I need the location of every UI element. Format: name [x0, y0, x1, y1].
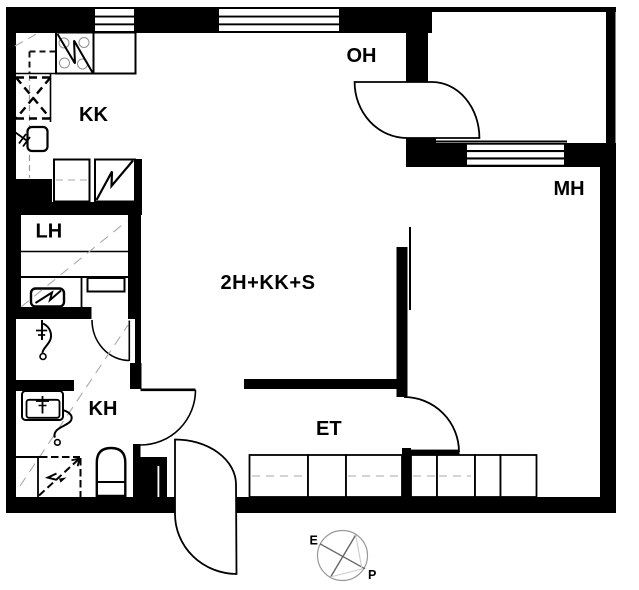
svg-text:OH: OH: [347, 45, 377, 67]
svg-text:ET: ET: [316, 418, 342, 440]
svg-text:KK: KK: [79, 104, 108, 126]
svg-text:KH: KH: [89, 398, 118, 420]
svg-text:P: P: [368, 568, 376, 582]
svg-text:E: E: [310, 534, 318, 548]
svg-text:2H+KK+S: 2H+KK+S: [221, 272, 316, 294]
svg-text:LH: LH: [36, 221, 63, 243]
svg-text:MH: MH: [554, 178, 585, 200]
